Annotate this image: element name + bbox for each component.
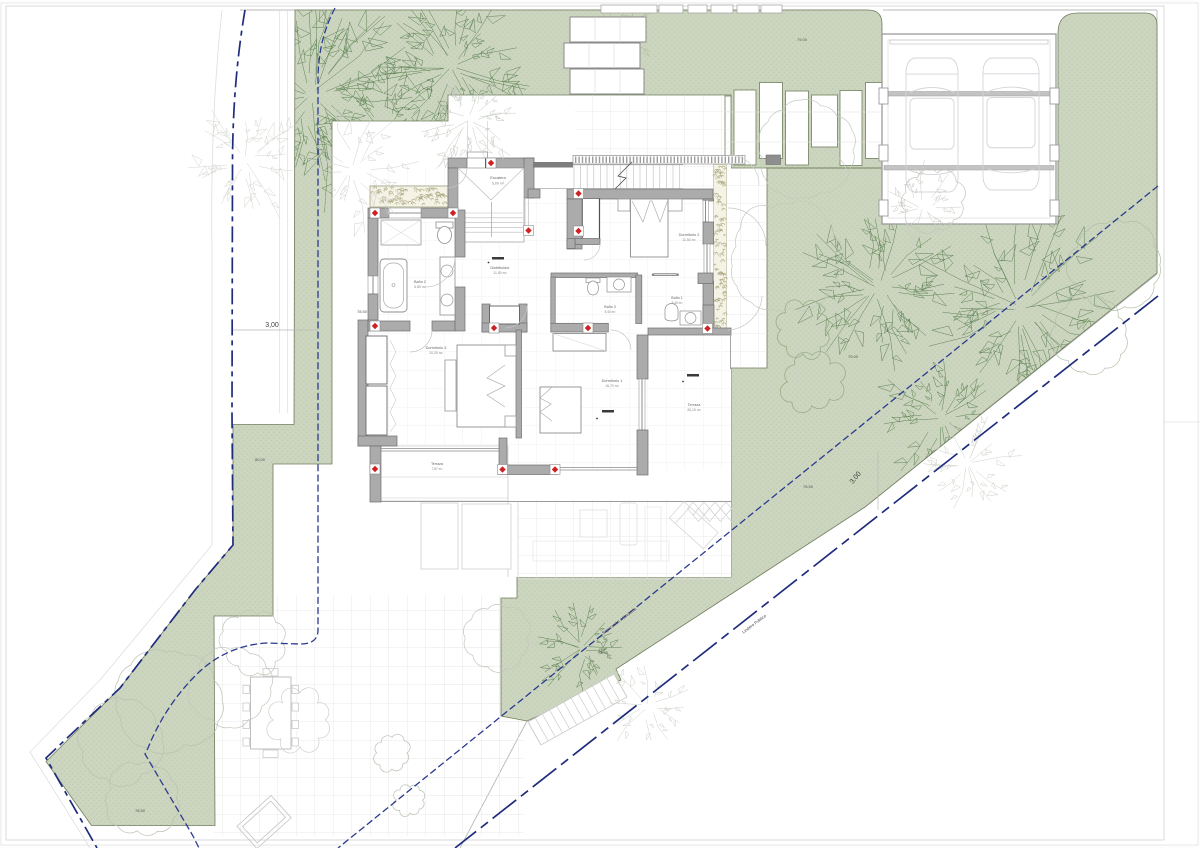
svg-text:Dormitorio 3: Dormitorio 3 [426, 346, 447, 350]
svg-text:78.50: 78.50 [357, 309, 368, 314]
svg-text:78,50: 78,50 [135, 808, 146, 813]
svg-text:Terraza: Terraza [688, 403, 702, 407]
svg-text:Baño 1: Baño 1 [671, 296, 682, 300]
svg-text:Dormitorio 1: Dormitorio 1 [602, 379, 623, 383]
svg-text:20,25 m²: 20,25 m² [429, 351, 443, 355]
svg-text:78.90: 78.90 [598, 650, 609, 655]
svg-text:5,00 m²: 5,00 m² [492, 182, 505, 186]
svg-text:79.00: 79.00 [848, 354, 859, 359]
svg-text:7,87 m²: 7,87 m² [432, 467, 443, 471]
svg-text:3,00: 3,00 [265, 322, 279, 329]
svg-text:26,15 m²: 26,15 m² [687, 408, 701, 412]
svg-text:Terraza: Terraza [431, 462, 443, 466]
svg-text:Baño 3: Baño 3 [604, 305, 615, 309]
svg-text:11,50 m²: 11,50 m² [493, 271, 507, 275]
svg-text:6,80 m²: 6,80 m² [414, 285, 426, 289]
svg-text:11,50 m²: 11,50 m² [682, 238, 696, 242]
svg-text:Baño 2: Baño 2 [414, 280, 426, 284]
svg-text:Escalera: Escalera [490, 175, 506, 180]
svg-text:80,00: 80,00 [255, 457, 266, 462]
svg-text:16,70 m²: 16,70 m² [605, 384, 619, 388]
svg-text:Dormitorio 2: Dormitorio 2 [679, 233, 700, 237]
svg-text:Distribuidor: Distribuidor [490, 266, 510, 270]
svg-text:5,40 m²: 5,40 m² [605, 310, 616, 314]
svg-text:5,40 m²: 5,40 m² [672, 301, 683, 305]
svg-text:79.00: 79.00 [797, 37, 808, 42]
svg-text:78.50: 78.50 [803, 484, 814, 489]
